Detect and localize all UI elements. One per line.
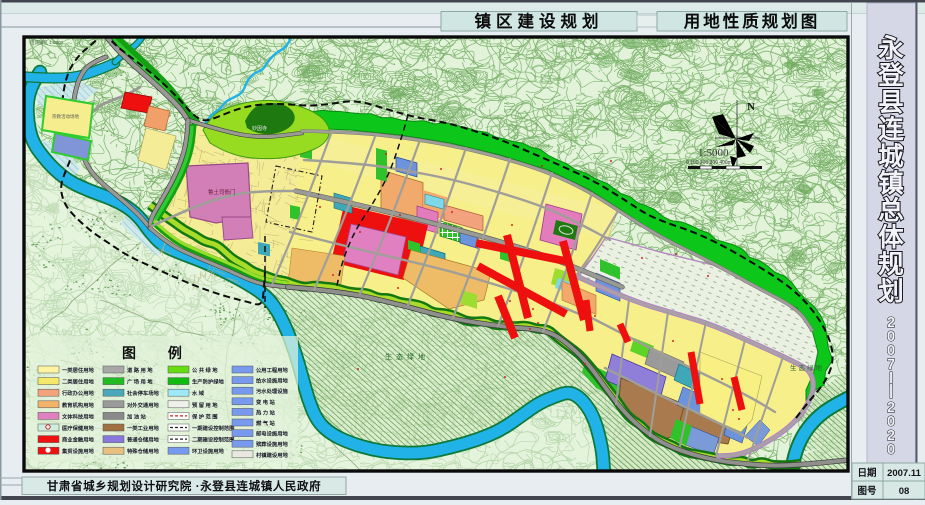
svg-text:N: N — [747, 101, 755, 113]
svg-text:规: 规 — [878, 251, 904, 279]
svg-text:总: 总 — [878, 197, 904, 225]
svg-text:用地性质规划图: 用地性质规划图 — [684, 11, 821, 31]
svg-text:二期建设控制范围: 二期建设控制范围 — [192, 436, 234, 444]
svg-text:文体科技用地: 文体科技用地 — [62, 412, 94, 420]
svg-text:连城镇区 1:5000: 连城镇区 1:5000 — [30, 39, 64, 46]
svg-text:生产防护绿地: 生产防护绿地 — [192, 378, 224, 386]
svg-text:鲁土司衙门: 鲁土司衙门 — [208, 188, 236, 196]
svg-text:图 例: 图 例 — [122, 345, 196, 361]
svg-text:图号: 图号 — [857, 486, 877, 497]
svg-text:2007.11: 2007.11 — [887, 468, 922, 479]
svg-text:村镇建设用地: 村镇建设用地 — [256, 451, 288, 459]
svg-text:1:5000: 1:5000 — [698, 147, 729, 159]
svg-text:生态绿地: 生态绿地 — [790, 363, 824, 372]
svg-text:08: 08 — [899, 486, 910, 497]
svg-text:变 电 站: 变 电 站 — [256, 398, 276, 406]
svg-text:二类居住用地: 二类居住用地 — [62, 378, 94, 386]
svg-text:日期: 日期 — [857, 467, 876, 479]
svg-text:集贸设施用地: 集贸设施用地 — [61, 447, 94, 455]
svg-text:商业金融用地: 商业金融用地 — [62, 436, 94, 444]
svg-text:环卫设施用地: 环卫设施用地 — [192, 447, 224, 455]
svg-text:|: | — [889, 383, 893, 399]
svg-text:污水处理设施: 污水处理设施 — [256, 387, 288, 395]
svg-text:普通仓储用地: 普通仓储用地 — [127, 436, 159, 444]
svg-text:登: 登 — [877, 61, 904, 90]
svg-text:殡葬设施用地: 殡葬设施用地 — [256, 440, 288, 448]
svg-text:一期建设控制范围: 一期建设控制范围 — [192, 424, 234, 432]
svg-text:公用工程用地: 公用工程用地 — [256, 366, 288, 374]
svg-text:燃 气 站: 燃 气 站 — [256, 419, 276, 427]
svg-text:宗教活动场地: 宗教活动场地 — [52, 113, 79, 120]
svg-text:一类居住用地: 一类居住用地 — [62, 366, 94, 374]
svg-text:县: 县 — [878, 89, 904, 117]
svg-text:医疗保健用地: 医疗保健用地 — [62, 424, 94, 432]
svg-text:镇区建设规划: 镇区建设规划 — [475, 11, 604, 31]
svg-text:对外交通用地: 对外交通用地 — [127, 401, 159, 409]
svg-text:永: 永 — [877, 35, 904, 63]
svg-text:0: 0 — [887, 442, 895, 458]
svg-text:镇: 镇 — [878, 170, 904, 198]
svg-text:预 留 用 地: 预 留 用 地 — [192, 401, 218, 409]
svg-text:妙因寺: 妙因寺 — [252, 125, 267, 132]
svg-text:加 油 站: 加 油 站 — [126, 412, 147, 420]
svg-text:教育机构用地: 教育机构用地 — [62, 401, 94, 409]
svg-text:划: 划 — [878, 278, 904, 306]
svg-text:给水设施用地: 给水设施用地 — [256, 377, 288, 385]
svg-text:行政办公用地: 行政办公用地 — [61, 389, 94, 397]
svg-text:城: 城 — [878, 143, 904, 171]
svg-text:邮电设施用地: 邮电设施用地 — [256, 430, 288, 438]
svg-text:社会停车场地: 社会停车场地 — [127, 389, 159, 397]
svg-text:热 力 站: 热 力 站 — [256, 408, 276, 416]
svg-text:道 路 用 地: 道 路 用 地 — [127, 366, 153, 374]
svg-text:水 域: 水 域 — [192, 389, 205, 397]
svg-text:公 共 绿 地: 公 共 绿 地 — [192, 366, 218, 374]
svg-text:生态绿地: 生态绿地 — [385, 352, 429, 361]
svg-text:甘肃省城乡规划设计研究院 ·永登县连城镇人民政府: 甘肃省城乡规划设计研究院 ·永登县连城镇人民政府 — [47, 479, 321, 493]
svg-text:广 场 用 地: 广 场 用 地 — [127, 378, 153, 386]
svg-text:0 100 200 300 400m: 0 100 200 300 400m — [686, 160, 732, 166]
svg-text:特殊仓储用地: 特殊仓储用地 — [127, 447, 159, 455]
svg-text:体: 体 — [878, 224, 904, 252]
svg-text:一类工业用地: 一类工业用地 — [127, 424, 159, 432]
svg-text:保 护 范 围: 保 护 范 围 — [191, 412, 218, 420]
svg-text:连: 连 — [878, 116, 904, 144]
